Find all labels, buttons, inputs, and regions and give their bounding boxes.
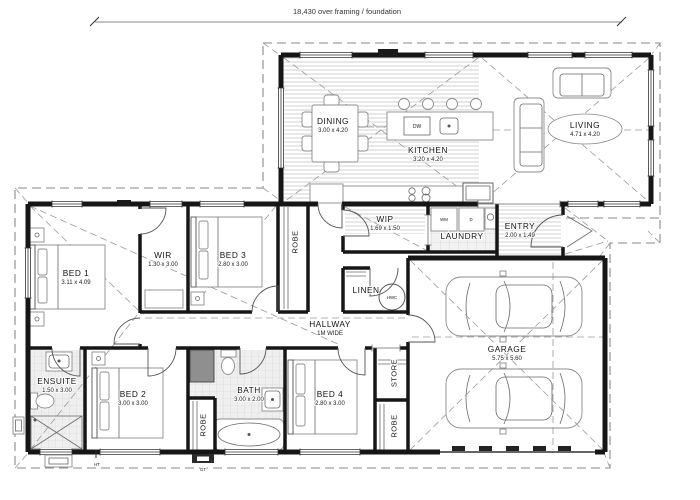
laundry-label: LAUNDRY bbox=[441, 231, 484, 241]
dimension-text: 18,430 over framing / foundation bbox=[293, 7, 401, 16]
window bbox=[648, 70, 655, 126]
window bbox=[300, 449, 360, 456]
bed1-label: BED 1 bbox=[63, 268, 89, 278]
garage-door-internal bbox=[408, 315, 435, 342]
robe-bed2-label: ROBE bbox=[199, 413, 208, 436]
garage-label: GARAGE bbox=[488, 344, 527, 354]
bed4-dims: 2.80 x 3.00 bbox=[315, 401, 345, 407]
bath-label: BATH bbox=[237, 385, 261, 395]
bed2-dims: 3.00 x 3.00 bbox=[118, 401, 148, 407]
floor-plan-page: DINING 3.00 x 4.20 KITCHEN 3.20 x 4.20 L… bbox=[0, 0, 700, 500]
window bbox=[585, 52, 632, 59]
hallway-label: HALLWAY bbox=[309, 319, 351, 329]
window bbox=[278, 88, 285, 168]
bath-shower bbox=[190, 350, 214, 382]
hwc-label: HWC bbox=[387, 295, 397, 300]
dining-dims: 3.00 x 4.20 bbox=[318, 128, 348, 134]
window bbox=[225, 449, 278, 456]
wip-dims: 1.69 x 1.50 bbox=[370, 226, 400, 232]
window bbox=[604, 201, 640, 208]
laundry-tub bbox=[485, 208, 496, 229]
ht-label: HT bbox=[94, 462, 100, 467]
entry-floor bbox=[499, 206, 561, 256]
entry-dims: 2.00 x 1.49 bbox=[505, 233, 535, 239]
car bbox=[446, 271, 582, 342]
window bbox=[568, 201, 598, 208]
sofa-two-seater bbox=[553, 68, 611, 98]
dimension-line: 18,430 over framing / foundation bbox=[90, 7, 626, 26]
entry-label: ENTRY bbox=[505, 221, 535, 231]
floor-plan-drawing: DINING 3.00 x 4.20 KITCHEN 3.20 x 4.20 L… bbox=[0, 0, 700, 500]
point-load-marker bbox=[117, 200, 131, 206]
window bbox=[300, 52, 352, 59]
bed1-dims: 3.11 x 4.09 bbox=[61, 280, 91, 286]
living-dims: 4.71 x 4.20 bbox=[570, 132, 600, 138]
window bbox=[25, 248, 32, 298]
car bbox=[446, 363, 582, 434]
sofa-three-seater bbox=[514, 98, 544, 172]
window bbox=[52, 201, 82, 208]
kitchen-label: KITCHEN bbox=[408, 145, 448, 155]
window bbox=[648, 140, 655, 176]
wm-label: WM bbox=[440, 217, 448, 222]
dw-label: DW bbox=[413, 124, 422, 130]
robe-bed4-label: ROBE bbox=[390, 414, 399, 437]
robe-bed3-label: ROBE bbox=[291, 230, 300, 253]
dryer-label: D bbox=[469, 217, 472, 222]
window bbox=[200, 201, 244, 208]
gt-label: GT bbox=[200, 467, 206, 472]
window bbox=[425, 52, 473, 59]
wip-label: WIP bbox=[376, 214, 393, 224]
store-label: STORE bbox=[390, 359, 399, 387]
ensuite-dims: 1.50 x 3.00 bbox=[42, 388, 72, 394]
window bbox=[100, 449, 160, 456]
wir-door bbox=[140, 208, 166, 234]
porch-step bbox=[567, 216, 592, 247]
ensuite-label: ENSUITE bbox=[37, 376, 76, 386]
bed3-door bbox=[252, 286, 278, 312]
bed4-label: BED 4 bbox=[317, 389, 343, 399]
bed3-dims: 2.80 x 3.00 bbox=[218, 262, 248, 268]
dining-label: DINING bbox=[317, 116, 349, 126]
wir-label: WIR bbox=[154, 250, 172, 260]
kitchen-bench bbox=[310, 183, 493, 203]
bed3-bed bbox=[191, 217, 262, 305]
living-label: LIVING bbox=[570, 120, 600, 130]
dimension-arrows bbox=[90, 17, 626, 26]
bed1-door bbox=[114, 318, 140, 344]
bed3-label: BED 3 bbox=[220, 250, 246, 260]
linen-label: LINEN bbox=[353, 285, 380, 295]
meter-box bbox=[13, 417, 24, 434]
garage-dims: 5.75 x 5.60 bbox=[492, 356, 522, 362]
window bbox=[150, 201, 182, 208]
bed2-label: BED 2 bbox=[120, 389, 146, 399]
window bbox=[528, 52, 572, 59]
window bbox=[40, 449, 72, 456]
hallway-dims: 1M WIDE bbox=[317, 331, 343, 337]
bath-toilet bbox=[221, 350, 236, 357]
wir-dims: 1.30 x 3.00 bbox=[148, 262, 178, 268]
bath-dims: 3.00 x 2.00 bbox=[234, 397, 264, 403]
kitchen-dims: 3.20 x 4.20 bbox=[413, 157, 443, 163]
kitchen-hall-door bbox=[318, 204, 342, 228]
point-load-marker bbox=[378, 49, 398, 56]
